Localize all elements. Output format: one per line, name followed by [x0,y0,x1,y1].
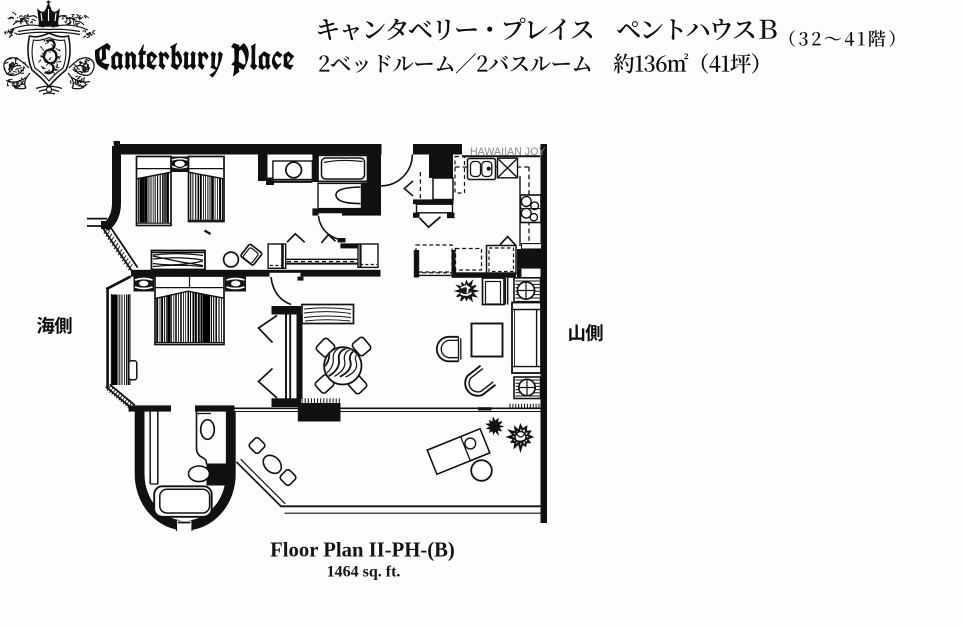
svg-text:1464 sq. ft.: 1464 sq. ft. [327,564,401,581]
svg-text:HAWAIIAN JOY: HAWAIIAN JOY [470,146,546,158]
svg-text:Floor Plan II-PH-(B): Floor Plan II-PH-(B) [270,540,455,562]
